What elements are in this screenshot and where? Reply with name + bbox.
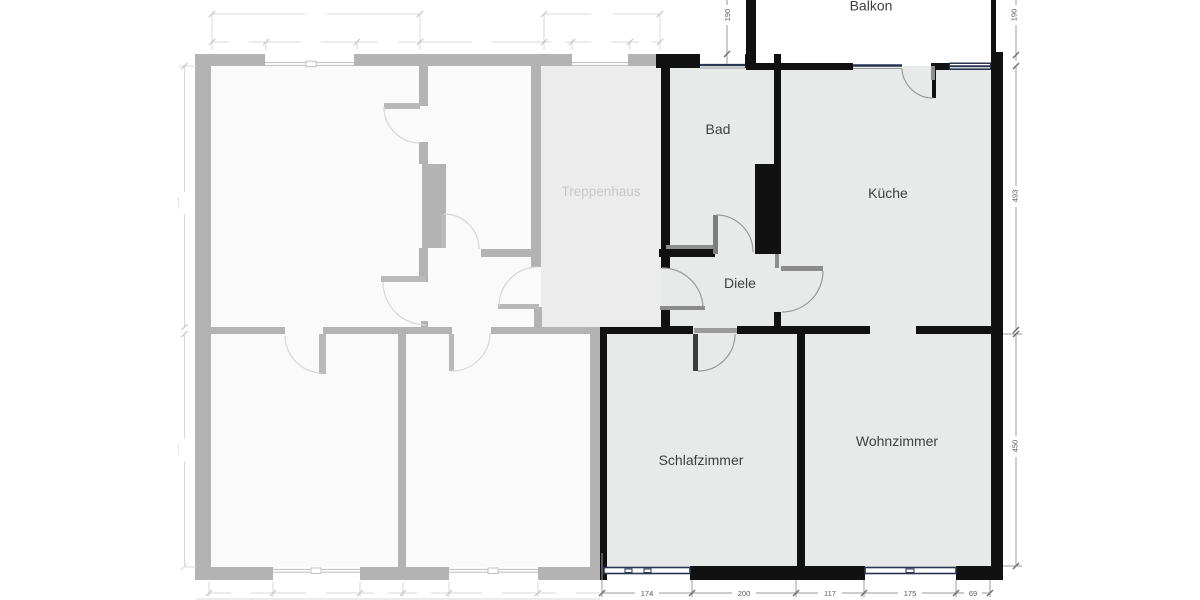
svg-text:450: 450 <box>1011 440 1020 453</box>
svg-text:Küche: Küche <box>868 185 908 201</box>
svg-text:69: 69 <box>969 589 977 598</box>
svg-text:493: 493 <box>1011 190 1020 203</box>
svg-text:Treppenhaus: Treppenhaus <box>561 184 640 199</box>
svg-text:190: 190 <box>1010 9 1019 22</box>
svg-text:Bad: Bad <box>706 121 731 137</box>
svg-text:175: 175 <box>904 589 917 598</box>
svg-text:117: 117 <box>824 589 836 598</box>
svg-text:Schlafzimmer: Schlafzimmer <box>659 452 744 468</box>
svg-text:190: 190 <box>723 9 732 22</box>
svg-text:Wohnzimmer: Wohnzimmer <box>856 433 939 449</box>
svg-text:Diele: Diele <box>724 275 756 291</box>
svg-text:Balkon: Balkon <box>850 0 893 14</box>
svg-text:200: 200 <box>738 589 751 598</box>
svg-text:174: 174 <box>641 589 654 598</box>
